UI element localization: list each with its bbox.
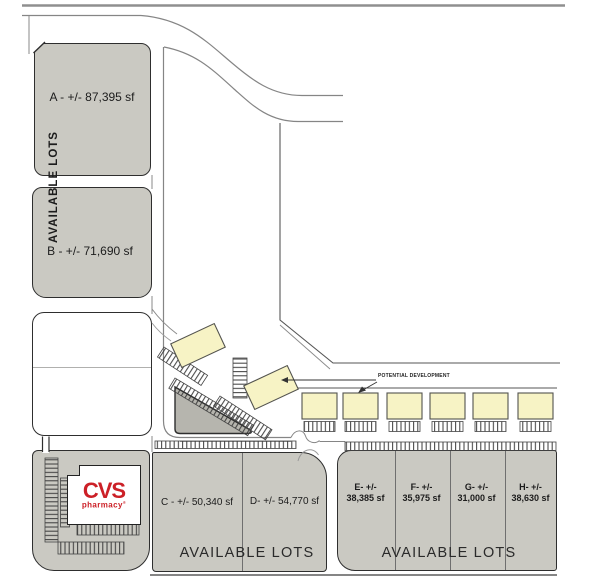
parking-strip: [389, 422, 420, 432]
lot-e-line2: 38,385 sf: [337, 493, 394, 504]
potential-building: [171, 324, 225, 368]
lot-e-line1: E- +/-: [337, 482, 394, 493]
leader-arrowhead: [281, 377, 288, 383]
available-lots-eh-label: AVAILABLE LOTS: [364, 545, 534, 561]
lot-g-label: G- +/- 31,000 sf: [449, 482, 504, 503]
lot-g-line1: G- +/-: [449, 482, 504, 493]
lot-f-label: F- +/- 35,975 sf: [394, 482, 449, 503]
parking-strip: [169, 378, 254, 436]
site-plan: CVS pharmacy® A - +/- 87,395 sf B - +/- …: [0, 0, 607, 588]
cvs-pharmacy-label: pharmacy®: [82, 501, 126, 510]
available-lots-cd-label: AVAILABLE LOTS: [162, 545, 332, 561]
potential-building: [473, 393, 508, 419]
potential-building: [387, 393, 422, 419]
lot-g-line2: 31,000 sf: [449, 493, 504, 504]
parking-strip: [520, 422, 551, 432]
building-row: [302, 393, 553, 419]
development-boundary: [280, 123, 560, 363]
triangle-island: [175, 387, 251, 434]
diagonal-buildings: [171, 324, 298, 410]
available-lots-vertical-label: AVAILABLE LOTS: [48, 117, 64, 257]
parking-strip: [432, 422, 463, 432]
lot-d-label: D- +/- 54,770 sf: [242, 496, 327, 507]
white-lot: [32, 312, 152, 436]
cvs-building-notch: [67, 465, 80, 476]
cvs-pharmacy-text: pharmacy: [82, 500, 123, 509]
diagonal-drive-edge-1: [152, 309, 177, 334]
diagonal-parking-strips: [157, 347, 272, 440]
lot-a-label: A - +/- 87,395 sf: [36, 91, 148, 104]
potential-building: [302, 393, 337, 419]
drive-squiggle: [291, 431, 345, 443]
vertical-road-right-edge: [164, 47, 292, 438]
parking-strip: [345, 422, 376, 432]
potential-development-leaders: [281, 377, 377, 393]
building-row-parking: [304, 422, 551, 432]
cvs-registered-mark: ®: [123, 500, 126, 505]
curved-road-outer: [141, 16, 343, 96]
cvs-wordmark: CVS: [83, 481, 125, 501]
leader-arrowhead: [358, 387, 366, 394]
lot-f-line1: F- +/-: [394, 482, 449, 493]
potential-building: [343, 393, 378, 419]
lot-c-label: C - +/- 50,340 sf: [152, 497, 242, 508]
parcel-boundaries: [280, 123, 560, 388]
lot-h-label: H- +/- 38,630 sf: [504, 482, 557, 503]
diagonal-drive-edge-2: [152, 323, 171, 341]
curved-road-inner: [164, 47, 343, 122]
potential-building: [244, 366, 298, 410]
lot-h-line1: H- +/-: [504, 482, 557, 493]
boundary-inner-line: [280, 325, 330, 369]
parking-strip: [475, 422, 506, 432]
lot-e-label: E- +/- 38,385 sf: [337, 482, 394, 503]
potential-development-label: POTENTIAL DEVELOPMENT: [378, 374, 453, 380]
parking-strip: [213, 396, 272, 440]
parking-strip: [157, 347, 207, 385]
potential-building: [518, 393, 553, 419]
lot-h-line2: 38,630 sf: [504, 493, 557, 504]
parking-strip: [304, 422, 335, 432]
leader-line: [363, 382, 377, 390]
white-lot-divider: [33, 367, 151, 368]
lot-f-line2: 35,975 sf: [394, 493, 449, 504]
parking-strip-cd: [155, 441, 296, 449]
parking-strip: [233, 358, 247, 398]
potential-building: [430, 393, 465, 419]
